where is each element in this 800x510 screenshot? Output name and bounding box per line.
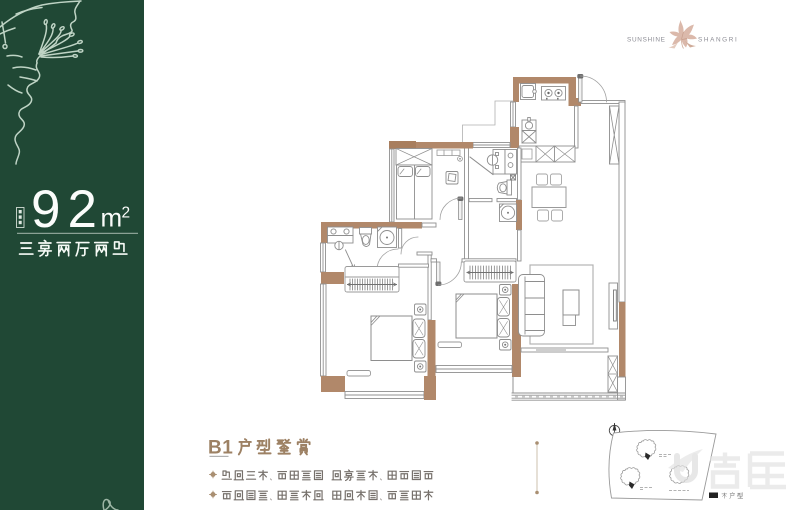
- svg-text:B1: B1: [208, 438, 233, 459]
